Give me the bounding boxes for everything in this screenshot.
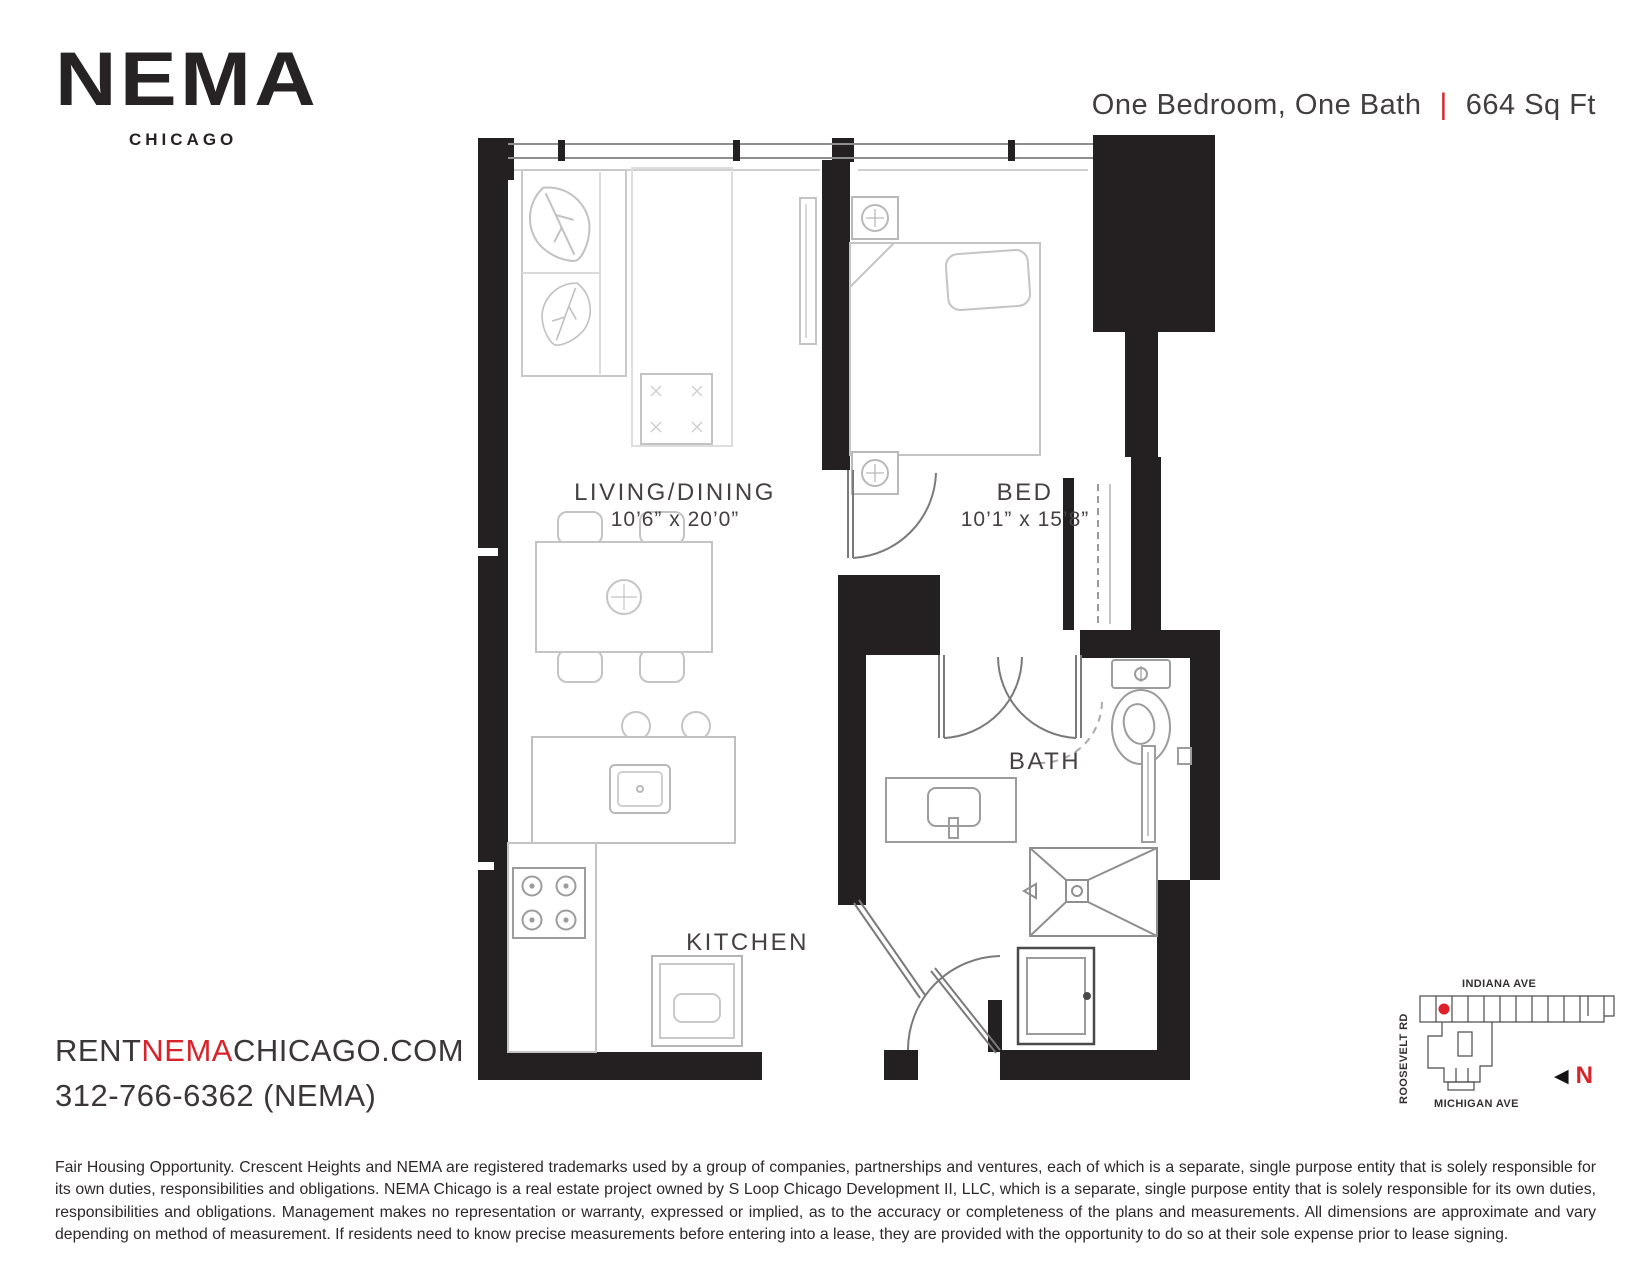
bed [850,243,1040,455]
entry-door [908,956,1000,1053]
room-label-kitchen: KITCHEN [625,929,870,957]
range [513,868,585,938]
phone-number: 312-766-6362 (NEMA) [55,1078,464,1114]
bed-dimensions: 10’1” x 15’8” [880,507,1170,533]
kitchen-name: KITCHEN [625,929,870,957]
window-band [508,140,1093,170]
north-arrow-icon: ◀ [1554,1067,1569,1086]
north-indicator: ◀ N [1554,1064,1593,1088]
room-label-living: LIVING/DINING 10’6” x 20’0” [520,479,830,533]
site-map: INDIANA AVE ROOSEVELT RD MICHIGAN AVE ◀ [1396,978,1650,1128]
website-highlight: NEMA [141,1033,233,1068]
towel-bar [1142,746,1191,842]
dining-table [536,542,712,652]
building-outline [1418,992,1624,1096]
vanity [886,778,1016,842]
bed-name: BED [880,479,1170,507]
washer-dryer [1018,948,1094,1044]
kitchen-island [532,737,735,843]
website-prefix: RENT [55,1033,141,1068]
living-dimensions: 10’6” x 20’0” [520,507,830,533]
north-label: N [1576,1064,1593,1088]
living-name: LIVING/DINING [520,479,830,507]
coffee-table [641,374,712,444]
contact-block: RENTNEMACHICAGO.COM 312-766-6362 (NEMA) [55,1033,464,1114]
refrigerator [652,956,742,1046]
bath-double-doors [939,655,1081,738]
nightstand-top [852,197,898,239]
disclaimer-text: Fair Housing Opportunity. Crescent Heigh… [55,1157,1596,1247]
street-label-indiana: INDIANA AVE [1462,978,1536,990]
street-label-roosevelt: ROOSEVELT RD [1398,1008,1410,1104]
shower [1024,848,1157,936]
unit-location-dot [1439,1004,1450,1015]
street-label-michigan: MICHIGAN AVE [1434,1098,1519,1110]
bar-stools [622,712,710,740]
room-label-bath: BATH [950,748,1140,776]
bath-name: BATH [950,748,1140,776]
tv-console [800,198,816,344]
room-label-bed: BED 10’1” x 15’8” [880,479,1170,533]
website-url: RENTNEMACHICAGO.COM [55,1033,464,1069]
website-suffix: CHICAGO.COM [233,1033,464,1068]
floorplan-flyer: NEMA CHICAGO One Bedroom, One Bath | 664… [0,0,1650,1275]
